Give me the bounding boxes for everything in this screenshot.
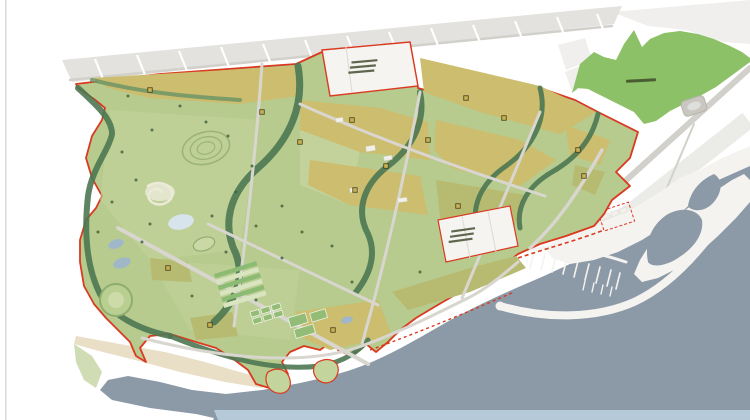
- parcel-marker: [464, 96, 469, 101]
- parcel-marker: [148, 88, 153, 93]
- parcel-marker: [353, 188, 358, 193]
- tree-dot: [111, 201, 114, 204]
- tree-dot: [191, 295, 194, 298]
- tree-dot: [255, 299, 258, 302]
- tree-dot: [331, 245, 334, 248]
- tree-dot: [135, 179, 138, 182]
- tree-dot: [227, 135, 230, 138]
- parcel-marker: [502, 116, 507, 121]
- white-parcel: [322, 42, 418, 96]
- tree-dot: [121, 151, 124, 154]
- tree-dot: [179, 105, 182, 108]
- parcel-marker: [582, 174, 587, 179]
- tree-dot: [127, 95, 130, 98]
- parcel-marker: [208, 323, 213, 328]
- parcel-marker: [260, 110, 265, 115]
- tree-dot: [281, 257, 284, 260]
- tree-dot: [211, 215, 214, 218]
- tree-dot: [351, 281, 354, 284]
- tree-dot: [251, 165, 254, 168]
- parcel-marker: [350, 118, 355, 123]
- tree-dot: [225, 251, 228, 254]
- illegible-label-block: [347, 59, 378, 74]
- parcel-marker: [331, 328, 336, 333]
- tree-dot: [149, 223, 152, 226]
- tree-dot: [419, 271, 422, 274]
- building: [336, 117, 343, 122]
- tree-dot: [141, 241, 144, 244]
- parcel-marker: [576, 148, 581, 153]
- parcel-marker: [298, 140, 303, 145]
- tree-dot: [97, 231, 100, 234]
- excluded-parcel-north: [322, 42, 418, 96]
- parcel-marker: [166, 266, 171, 271]
- tree-dot: [205, 121, 208, 124]
- masterplan-map-image: [0, 0, 750, 420]
- circular-lawn-center: [108, 292, 124, 308]
- page-edge-line: [5, 0, 7, 420]
- sea-shallow-strip: [214, 410, 750, 420]
- coastal-islet: [314, 360, 339, 383]
- parcel-marker: [384, 164, 389, 169]
- tree-dot: [151, 129, 154, 132]
- breakwater-head: [496, 302, 505, 311]
- masterplan-page: [0, 0, 750, 420]
- tree-dot: [255, 225, 258, 228]
- parcel-marker: [426, 138, 431, 143]
- parcel-marker: [456, 204, 461, 209]
- tree-dot: [281, 205, 284, 208]
- tree-dot: [301, 231, 304, 234]
- tree-dot: [235, 191, 238, 194]
